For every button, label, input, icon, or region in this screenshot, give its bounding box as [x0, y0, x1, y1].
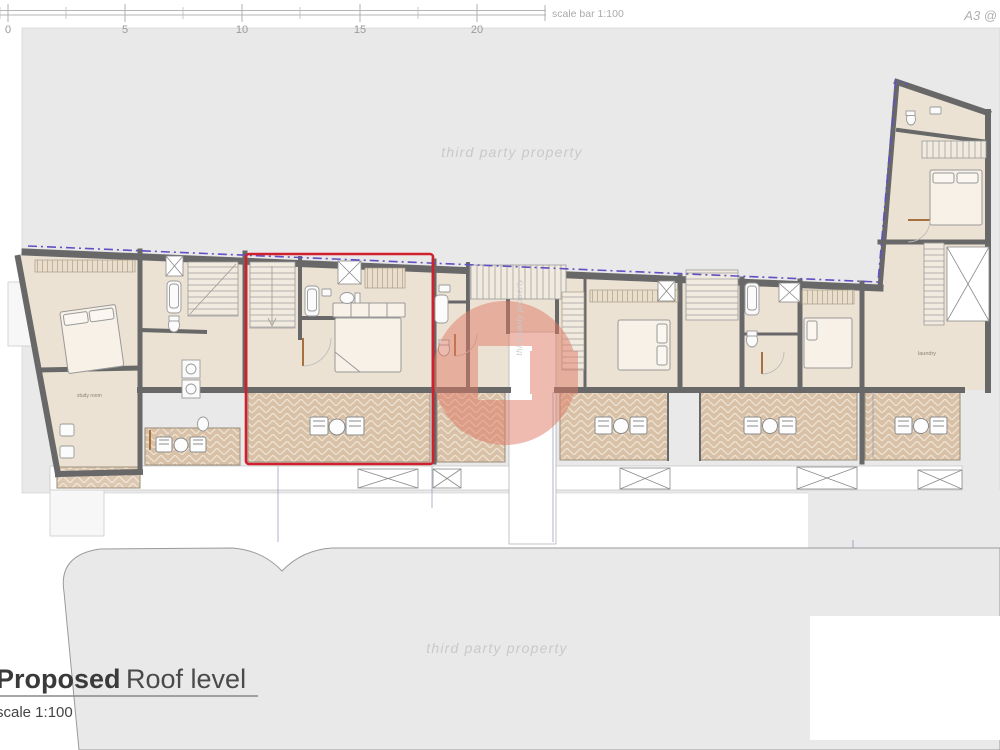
- drawing-title-bold: Proposed: [0, 664, 121, 694]
- watermark-text-bottom: third party property: [426, 640, 568, 656]
- scale-tick-10: 10: [236, 24, 248, 36]
- watermark-text-vertical: third party property: [515, 278, 524, 356]
- scale-tick-15: 15: [354, 24, 366, 36]
- scale-tick-20: 20: [471, 24, 483, 36]
- watermark-text-top: third party property: [441, 144, 583, 160]
- sheet-size-annotation: A3 @: [963, 8, 997, 23]
- furniture-set: [595, 417, 647, 434]
- scale-bar-label: scale bar 1:100: [552, 8, 624, 20]
- room-label-study: study room: [77, 393, 102, 399]
- scale-tick-5: 5: [122, 24, 128, 36]
- furniture-set: [744, 417, 796, 434]
- floor-plan-sheet: study room laundry third party property …: [0, 0, 1000, 750]
- title-block-window: [810, 616, 1000, 740]
- drawing-title-regular: Roof level: [126, 664, 246, 694]
- drawing-scale-note: scale 1:100: [0, 704, 73, 721]
- scale-tick-0: 0: [5, 24, 11, 36]
- furniture-set: [156, 437, 206, 452]
- furniture-set: [895, 417, 947, 434]
- furniture-set: [310, 417, 364, 435]
- room-label-laundry: laundry: [918, 351, 936, 357]
- drawing-sheet: study room laundry third party property …: [0, 0, 1000, 750]
